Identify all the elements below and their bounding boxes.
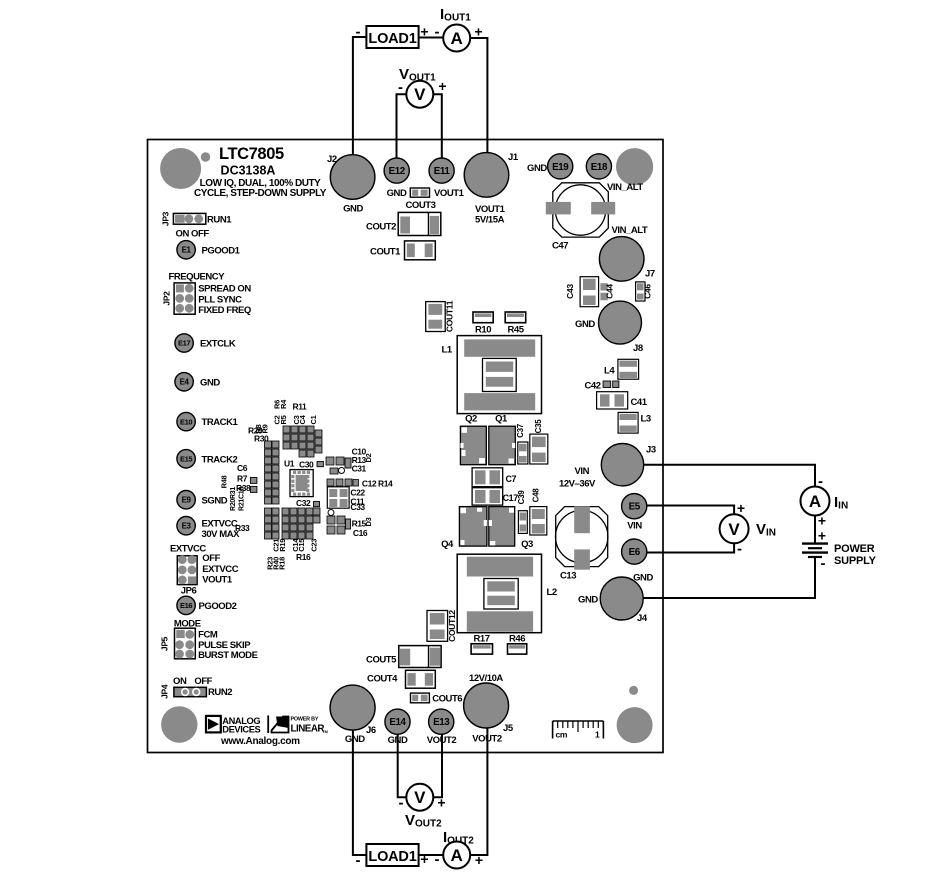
svg-text:LTC7805: LTC7805 <box>219 145 284 163</box>
svg-text:VOUT2: VOUT2 <box>472 734 502 745</box>
svg-text:-: - <box>356 852 361 869</box>
svg-text:-: - <box>356 24 361 41</box>
svg-text:JP6: JP6 <box>181 586 197 597</box>
svg-text:DEVICES: DEVICES <box>222 725 260 735</box>
svg-text:J4: J4 <box>637 613 648 624</box>
svg-text:JP5: JP5 <box>160 636 170 651</box>
svg-text:R10: R10 <box>475 325 491 336</box>
svg-text:C32: C32 <box>296 498 311 508</box>
svg-text:-: - <box>821 555 826 572</box>
svg-text:LOAD1: LOAD1 <box>368 849 416 865</box>
svg-text:C37: C37 <box>516 423 525 438</box>
svg-text:GND: GND <box>575 319 595 330</box>
svg-text:BURST MODE: BURST MODE <box>198 650 257 661</box>
svg-text:C33: C33 <box>350 502 365 512</box>
svg-text:E12: E12 <box>389 166 406 177</box>
svg-text:C17: C17 <box>503 493 519 503</box>
svg-text:TM: TM <box>322 729 328 734</box>
svg-text:E6: E6 <box>629 547 641 558</box>
svg-text:J7: J7 <box>645 269 655 280</box>
svg-text:VIN_ALT: VIN_ALT <box>612 225 648 236</box>
svg-text:L3: L3 <box>641 414 651 425</box>
svg-text:ON: ON <box>173 676 187 687</box>
svg-text:C35: C35 <box>534 419 543 434</box>
svg-text:C42: C42 <box>585 381 601 392</box>
svg-text:E3: E3 <box>182 522 192 531</box>
svg-text:COUT6: COUT6 <box>432 693 462 704</box>
svg-text:+: + <box>437 795 445 811</box>
svg-text:ON OFF: ON OFF <box>176 229 210 240</box>
svg-text:COUT5: COUT5 <box>366 655 397 666</box>
svg-text:D2: D2 <box>364 453 373 462</box>
svg-text:C6: C6 <box>237 463 248 473</box>
svg-text:GND: GND <box>388 735 408 746</box>
svg-text:VOUT1: VOUT1 <box>434 188 465 199</box>
svg-text:C7: C7 <box>506 474 517 484</box>
svg-text:R33: R33 <box>235 523 250 533</box>
svg-text:+: + <box>474 24 482 40</box>
svg-text:VOUT1: VOUT1 <box>475 204 506 215</box>
svg-text:E9: E9 <box>182 496 192 505</box>
svg-text:R11: R11 <box>293 402 307 412</box>
svg-text:5V/15A: 5V/15A <box>475 215 505 226</box>
svg-text:+: + <box>818 513 826 529</box>
svg-text:VOUT2: VOUT2 <box>405 812 442 830</box>
svg-text:E15: E15 <box>180 455 192 464</box>
svg-text:R20R31: R20R31 <box>230 487 237 511</box>
svg-text:PGOOD2: PGOOD2 <box>199 601 237 612</box>
svg-text:1: 1 <box>595 730 600 740</box>
svg-text:C41: C41 <box>631 397 648 408</box>
svg-text:R9: R9 <box>261 424 270 433</box>
svg-text:C23: C23 <box>310 539 319 552</box>
svg-text:EXTCLK: EXTCLK <box>200 339 236 350</box>
svg-text:COUT11: COUT11 <box>445 300 455 332</box>
svg-text:GND: GND <box>345 734 365 745</box>
svg-text:LOAD1: LOAD1 <box>368 31 416 47</box>
svg-text:E17: E17 <box>178 339 190 348</box>
svg-text:GND: GND <box>387 188 407 199</box>
svg-text:R21C18: R21C18 <box>239 487 246 511</box>
svg-text:VOUT1: VOUT1 <box>202 574 233 585</box>
svg-text:C31: C31 <box>352 463 367 473</box>
svg-text:+: + <box>438 78 446 94</box>
svg-text:C48: C48 <box>532 488 541 503</box>
svg-text:IOUT1: IOUT1 <box>440 6 471 24</box>
svg-text:COUT2: COUT2 <box>366 222 396 233</box>
svg-text:C1: C1 <box>309 415 318 424</box>
svg-text:E16: E16 <box>180 601 192 610</box>
svg-text:GND: GND <box>343 204 363 215</box>
svg-text:TRACK1: TRACK1 <box>202 417 239 428</box>
svg-text:-: - <box>435 851 440 868</box>
svg-text:C15: C15 <box>297 539 306 552</box>
svg-text:PGOOD1: PGOOD1 <box>202 246 241 257</box>
svg-text:COUT1: COUT1 <box>370 247 401 258</box>
svg-text:C47: C47 <box>552 241 568 252</box>
svg-text:R7: R7 <box>237 474 248 484</box>
svg-text:C4: C4 <box>298 414 307 424</box>
svg-text:C16: C16 <box>353 528 368 538</box>
svg-text:GND: GND <box>200 378 220 389</box>
svg-text:VIN: VIN <box>575 466 590 477</box>
svg-text:VIN: VIN <box>627 521 642 532</box>
svg-text:J5: J5 <box>503 723 514 734</box>
svg-text:J3: J3 <box>646 445 656 456</box>
svg-text:E13: E13 <box>433 717 450 728</box>
svg-text:J8: J8 <box>633 343 643 354</box>
svg-text:LINEAR: LINEAR <box>291 724 325 735</box>
svg-text:-: - <box>398 79 403 96</box>
svg-text:E14: E14 <box>389 717 406 728</box>
svg-text:C12 R14: C12 R14 <box>362 479 393 489</box>
svg-text:+: + <box>737 500 745 516</box>
svg-text:RUN2: RUN2 <box>208 687 232 698</box>
svg-text:+: + <box>420 851 428 867</box>
svg-text:POWER BY: POWER BY <box>291 717 319 723</box>
svg-text:SGND: SGND <box>202 496 228 507</box>
svg-text:V: V <box>728 520 740 539</box>
svg-text:L2: L2 <box>547 587 557 598</box>
svg-text:+: + <box>818 528 826 544</box>
svg-text:-: - <box>435 24 440 41</box>
svg-text:R19: R19 <box>278 539 287 552</box>
svg-text:POWER: POWER <box>834 543 875 555</box>
svg-text:A: A <box>451 29 463 48</box>
svg-text:C44: C44 <box>605 284 615 299</box>
svg-text:J1: J1 <box>508 152 519 163</box>
svg-text:R16: R16 <box>296 552 311 562</box>
svg-text:R4: R4 <box>279 399 288 409</box>
svg-text:PLL SYNC: PLL SYNC <box>198 294 242 305</box>
svg-text:R46: R46 <box>509 634 525 645</box>
svg-text:R17: R17 <box>473 634 489 645</box>
svg-text:D3: D3 <box>364 517 373 526</box>
svg-text:E11: E11 <box>434 166 451 177</box>
svg-text:C30: C30 <box>299 460 314 470</box>
svg-text:VIN: VIN <box>756 521 776 539</box>
svg-text:A: A <box>809 492 821 511</box>
svg-text:C39: C39 <box>517 490 526 505</box>
svg-text:TRACK2: TRACK2 <box>202 455 238 466</box>
svg-text:L4: L4 <box>604 366 615 377</box>
svg-text:R45: R45 <box>507 325 524 336</box>
svg-text:GND: GND <box>578 595 598 606</box>
svg-text:E19: E19 <box>552 162 569 173</box>
svg-text:DC3138A: DC3138A <box>221 164 276 178</box>
svg-text:+: + <box>475 852 483 868</box>
svg-text:JP2: JP2 <box>162 291 172 306</box>
svg-text:EXTVCC: EXTVCC <box>202 519 238 530</box>
svg-text:J6: J6 <box>366 725 376 736</box>
svg-text:R48: R48 <box>220 475 229 488</box>
svg-text:Q1: Q1 <box>495 414 508 425</box>
svg-text:RUN1: RUN1 <box>207 215 232 226</box>
svg-text:C13: C13 <box>560 571 576 582</box>
svg-text:COUT4: COUT4 <box>367 674 398 685</box>
svg-text:E1: E1 <box>182 246 192 255</box>
svg-text:-: - <box>818 473 823 490</box>
svg-text:VOUT2: VOUT2 <box>427 735 457 746</box>
svg-text:www.Analog.com: www.Analog.com <box>220 736 300 747</box>
svg-text:E10: E10 <box>180 417 192 426</box>
svg-text:Q3: Q3 <box>521 539 533 550</box>
svg-text:JP3: JP3 <box>161 211 171 226</box>
svg-text:+: + <box>420 24 428 40</box>
svg-text:C46: C46 <box>643 284 653 299</box>
svg-text:VIN_ALT: VIN_ALT <box>607 182 643 193</box>
svg-text:COUT3: COUT3 <box>406 200 436 211</box>
svg-text:EXTVCC: EXTVCC <box>202 564 238 575</box>
svg-text:SUPPLY: SUPPLY <box>834 555 877 567</box>
svg-text:cm: cm <box>556 730 568 740</box>
svg-text:FREQUENCY: FREQUENCY <box>169 272 226 283</box>
svg-text:R5: R5 <box>279 415 288 424</box>
svg-text:A: A <box>451 846 463 865</box>
svg-text:OFF: OFF <box>202 553 220 564</box>
svg-text:GND: GND <box>527 163 547 174</box>
svg-text:JP4: JP4 <box>160 684 170 699</box>
svg-text:FCM: FCM <box>198 629 218 640</box>
svg-text:V: V <box>414 788 426 807</box>
svg-text:FIXED FREQ: FIXED FREQ <box>198 305 251 316</box>
svg-text:-: - <box>737 541 742 558</box>
svg-text:-: - <box>399 795 404 812</box>
svg-text:U1: U1 <box>284 459 295 469</box>
svg-text:IIN: IIN <box>834 494 848 512</box>
svg-text:SPREAD ON: SPREAD ON <box>198 284 251 295</box>
svg-text:C43: C43 <box>565 284 575 299</box>
svg-text:OFF: OFF <box>194 676 212 687</box>
svg-text:EXTVCC: EXTVCC <box>170 544 206 555</box>
svg-text:12V–36V: 12V–36V <box>559 479 596 490</box>
svg-text:V: V <box>414 85 426 104</box>
svg-text:Q2: Q2 <box>465 414 477 425</box>
svg-text:Q4: Q4 <box>441 539 454 550</box>
svg-text:R18: R18 <box>278 557 287 570</box>
svg-text:L1: L1 <box>442 345 453 356</box>
svg-text:CYCLE, STEP-DOWN SUPPLY: CYCLE, STEP-DOWN SUPPLY <box>194 188 327 199</box>
svg-text:E4: E4 <box>180 378 190 387</box>
svg-text:E18: E18 <box>591 162 608 173</box>
svg-text:E5: E5 <box>629 502 641 513</box>
svg-text:COUT12: COUT12 <box>447 610 457 642</box>
